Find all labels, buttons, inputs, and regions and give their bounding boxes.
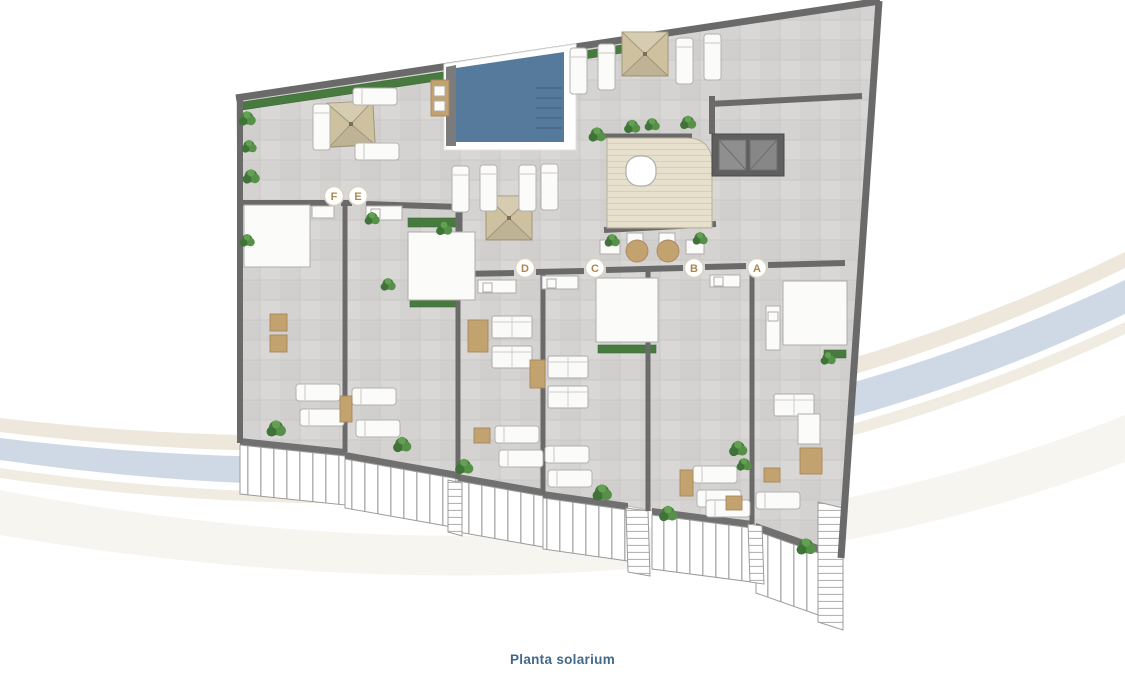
- terrace-marker-e: E: [349, 187, 368, 206]
- roof-access-box: [596, 278, 658, 342]
- round-table: [626, 240, 648, 262]
- parasol: [622, 32, 668, 76]
- terrace-marker-c-label: C: [591, 263, 599, 275]
- terrace-marker-b: B: [685, 259, 704, 278]
- terrace-marker-f: F: [325, 187, 344, 206]
- roof-access-box: [408, 232, 475, 300]
- parasol: [327, 101, 375, 147]
- floorplan-svg: F E D C B A: [0, 0, 1125, 678]
- plan-caption: Planta solarium: [0, 652, 1125, 667]
- terrace-marker-d: D: [516, 259, 535, 278]
- pool: [431, 44, 576, 150]
- elevator-core: [712, 134, 784, 176]
- terrace-marker-a: A: [748, 259, 767, 278]
- shower-tray: [434, 101, 445, 111]
- roof-access-box: [244, 205, 310, 267]
- roof-access-box: [783, 281, 847, 345]
- terrace-marker-b-label: B: [690, 263, 698, 275]
- shower-tray: [434, 86, 445, 96]
- terrace-marker-e-label: E: [354, 191, 361, 203]
- terrace-marker-c: C: [586, 259, 605, 278]
- terrace-marker-d-label: D: [521, 263, 529, 275]
- round-table: [657, 240, 679, 262]
- spa-tub: [626, 156, 656, 186]
- wood-deck: [607, 138, 712, 228]
- terrace-marker-f-label: F: [331, 191, 338, 203]
- terrace-marker-a-label: A: [753, 263, 761, 275]
- solarium-floorplan-figure: F E D C B A Planta solarium: [0, 0, 1125, 678]
